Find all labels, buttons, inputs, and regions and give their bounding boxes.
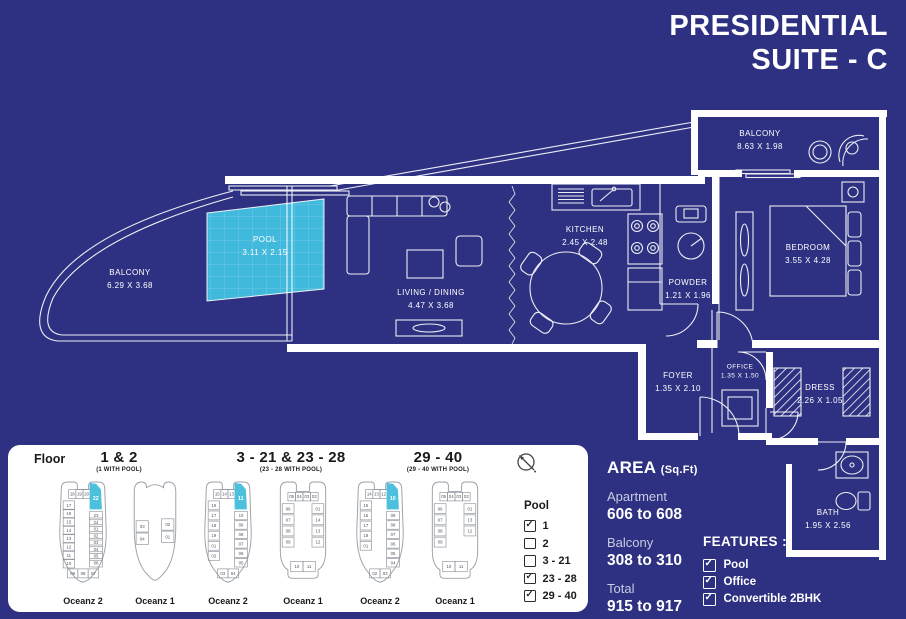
area-row-value: 606 to 608 xyxy=(607,506,698,524)
svg-text:11: 11 xyxy=(238,496,244,502)
svg-text:11: 11 xyxy=(459,564,464,569)
svg-text:09: 09 xyxy=(70,571,75,576)
svg-text:01: 01 xyxy=(94,527,99,532)
pool-legend-title: Pool xyxy=(524,500,577,512)
mini-plan-3: 15141312111009080706051617181901020304 xyxy=(194,476,262,590)
checkbox-icon xyxy=(524,590,536,602)
svg-text:16: 16 xyxy=(66,511,71,516)
floor-label: Floor xyxy=(34,452,65,466)
svg-text:18: 18 xyxy=(70,492,75,497)
svg-text:19: 19 xyxy=(77,492,82,497)
svg-text:06: 06 xyxy=(438,506,443,511)
svg-text:01: 01 xyxy=(315,506,320,511)
svg-text:08: 08 xyxy=(239,532,244,537)
svg-text:13: 13 xyxy=(374,492,379,497)
svg-text:01: 01 xyxy=(211,543,216,548)
floor-group-2: 3 - 21 & 23 - 28 (23 - 28 WITH POOL) xyxy=(236,449,345,473)
svg-text:06: 06 xyxy=(391,541,396,546)
svg-text:03: 03 xyxy=(140,524,145,529)
room-label-kitchen: KITCHEN 2.45 X 2.48 xyxy=(562,224,608,250)
svg-text:13: 13 xyxy=(315,529,320,534)
svg-text:22: 22 xyxy=(93,496,99,502)
svg-text:10: 10 xyxy=(294,564,299,569)
svg-text:01: 01 xyxy=(467,506,472,511)
svg-text:14: 14 xyxy=(367,492,372,497)
building-label-1: Oceanz 2 xyxy=(49,596,117,606)
area-heading: AREA (Sq.Ft) xyxy=(607,458,698,478)
svg-text:09: 09 xyxy=(286,540,291,545)
svg-text:07: 07 xyxy=(286,517,291,522)
room-label-office: OFFICE 1.35 X 1.50 xyxy=(721,363,759,382)
svg-text:10: 10 xyxy=(66,561,71,566)
area-panel: AREA (Sq.Ft) Apartment 606 to 608 Balcon… xyxy=(607,458,698,616)
svg-text:23: 23 xyxy=(94,513,99,518)
room-label-bath: BATH 1.95 X 2.56 xyxy=(805,507,851,533)
room-label-dress: DRESS 2.26 X 1.05 xyxy=(797,382,843,408)
svg-text:20: 20 xyxy=(84,492,89,497)
building-label-6: Oceanz 1 xyxy=(421,596,489,606)
svg-text:01: 01 xyxy=(165,534,170,539)
svg-text:03: 03 xyxy=(220,571,225,576)
svg-text:14: 14 xyxy=(66,528,71,533)
svg-text:10: 10 xyxy=(390,496,396,502)
legend-item-3: 3 - 21 xyxy=(524,555,577,567)
feature-item-office: Office xyxy=(703,576,821,589)
floor-group-3: 29 - 40 (29 - 40 WITH POOL) xyxy=(407,449,469,473)
floors-panel: Floor 1 & 2 (1 WITH POOL) 3 - 21 & 23 - … xyxy=(8,445,588,612)
svg-text:02: 02 xyxy=(94,533,99,538)
mini-plan-1: 1819202122232401020304050617161514131211… xyxy=(49,476,117,590)
svg-text:15: 15 xyxy=(66,520,71,525)
area-row-value: 915 to 917 xyxy=(607,598,698,616)
svg-text:05: 05 xyxy=(289,494,294,499)
svg-text:13: 13 xyxy=(229,492,234,497)
svg-text:12: 12 xyxy=(467,529,472,534)
svg-text:11: 11 xyxy=(67,553,72,558)
svg-text:02: 02 xyxy=(372,571,377,576)
svg-text:04: 04 xyxy=(297,494,302,499)
features-heading: FEATURES : xyxy=(703,534,821,549)
svg-text:16: 16 xyxy=(211,503,216,508)
svg-text:07: 07 xyxy=(91,571,96,576)
svg-text:05: 05 xyxy=(391,551,396,556)
svg-text:03: 03 xyxy=(383,571,388,576)
legend-item-1: 1 xyxy=(524,520,577,532)
svg-text:05: 05 xyxy=(239,560,244,565)
svg-text:06: 06 xyxy=(94,560,99,565)
legend-item-4: 23 - 28 xyxy=(524,573,577,585)
checkbox-icon xyxy=(524,555,536,567)
svg-text:13: 13 xyxy=(467,517,472,522)
svg-text:07: 07 xyxy=(391,532,396,537)
feature-item-convertible: Convertible 2BHK xyxy=(703,593,821,606)
area-row-label: Total xyxy=(607,581,698,596)
svg-text:18: 18 xyxy=(363,533,368,538)
svg-text:15: 15 xyxy=(363,503,368,508)
svg-text:04: 04 xyxy=(449,494,454,499)
building-label-3: Oceanz 2 xyxy=(194,596,262,606)
svg-text:09: 09 xyxy=(239,523,244,528)
svg-text:08: 08 xyxy=(286,529,291,534)
svg-text:04: 04 xyxy=(94,547,99,552)
svg-text:08: 08 xyxy=(81,571,86,576)
svg-text:04: 04 xyxy=(391,560,396,565)
svg-text:11: 11 xyxy=(307,564,312,569)
feature-item-pool: Pool xyxy=(703,559,821,572)
mini-plan-5: 141312111009080706050415161718010203 xyxy=(346,476,414,590)
room-label-foyer: FOYER 1.35 X 2.10 xyxy=(655,370,701,396)
svg-text:12: 12 xyxy=(315,540,320,545)
svg-text:05: 05 xyxy=(441,494,446,499)
svg-text:18: 18 xyxy=(211,523,216,528)
svg-text:09: 09 xyxy=(391,513,396,518)
svg-text:06: 06 xyxy=(239,551,244,556)
svg-text:02: 02 xyxy=(312,494,317,499)
svg-text:02: 02 xyxy=(211,553,216,558)
checkbox-icon xyxy=(524,538,536,550)
svg-text:13: 13 xyxy=(66,536,71,541)
svg-text:04: 04 xyxy=(140,536,145,541)
svg-text:17: 17 xyxy=(211,513,216,518)
svg-text:01: 01 xyxy=(363,543,368,548)
area-row-label: Balcony xyxy=(607,535,698,550)
floor-group-1: 1 & 2 (1 WITH POOL) xyxy=(96,449,142,473)
svg-text:09: 09 xyxy=(438,540,443,545)
svg-text:10: 10 xyxy=(446,564,451,569)
svg-text:07: 07 xyxy=(239,541,244,546)
room-label-living: LIVING / DINING 4.47 X 3.68 xyxy=(397,287,465,313)
svg-text:02: 02 xyxy=(464,494,469,499)
svg-text:10: 10 xyxy=(239,513,244,518)
room-label-powder: POWDER 1.21 X 1.96 xyxy=(665,277,711,303)
north-arrow-icon xyxy=(514,451,540,482)
svg-text:03: 03 xyxy=(456,494,461,499)
svg-text:05: 05 xyxy=(94,554,99,559)
svg-text:12: 12 xyxy=(66,544,71,549)
svg-text:14: 14 xyxy=(222,492,227,497)
building-label-4: Oceanz 1 xyxy=(269,596,337,606)
svg-text:24: 24 xyxy=(94,520,99,525)
area-unit: (Sq.Ft) xyxy=(661,464,698,476)
svg-text:03: 03 xyxy=(304,494,309,499)
svg-text:17: 17 xyxy=(363,523,368,528)
area-row-value: 308 to 310 xyxy=(607,552,698,570)
mini-plan-2: 03040201 xyxy=(121,476,189,590)
svg-text:04: 04 xyxy=(231,571,236,576)
checkbox-icon xyxy=(703,559,716,572)
checkbox-icon xyxy=(524,573,536,585)
checkbox-icon xyxy=(703,576,716,589)
checkbox-icon xyxy=(524,520,536,532)
svg-text:06: 06 xyxy=(286,506,291,511)
mini-plan-6: 05040302060708090113121011 xyxy=(421,476,489,590)
svg-text:12: 12 xyxy=(381,492,386,497)
room-label-bedroom: BEDROOM 3.55 X 4.28 xyxy=(785,242,831,268)
mini-plan-4: 0504030206070809011413121011 xyxy=(269,476,337,590)
svg-text:02: 02 xyxy=(165,522,170,527)
svg-text:14: 14 xyxy=(315,517,320,522)
svg-text:08: 08 xyxy=(438,529,443,534)
building-label-2: Oceanz 1 xyxy=(121,596,189,606)
checkbox-icon xyxy=(703,593,716,606)
building-label-5: Oceanz 2 xyxy=(346,596,414,606)
svg-text:07: 07 xyxy=(438,517,443,522)
pool-legend: Pool 1 2 3 - 21 23 - 28 29 - 40 xyxy=(524,500,577,608)
room-label-pool: POOL 3.11 X 2.15 xyxy=(242,234,287,260)
svg-text:16: 16 xyxy=(363,513,368,518)
svg-text:08: 08 xyxy=(391,523,396,528)
features-panel: FEATURES : Pool Office Convertible 2BHK xyxy=(703,534,821,610)
svg-text:15: 15 xyxy=(215,492,220,497)
area-row-label: Apartment xyxy=(607,489,698,504)
room-label-balcony-left: BALCONY 6.29 X 3.68 xyxy=(107,267,153,293)
room-label-balcony-top: BALCONY 8.63 X 1.98 xyxy=(737,128,783,154)
svg-text:03: 03 xyxy=(94,540,99,545)
svg-text:19: 19 xyxy=(211,533,216,538)
svg-text:17: 17 xyxy=(66,503,71,508)
legend-item-5: 29 - 40 xyxy=(524,590,577,602)
legend-item-2: 2 xyxy=(524,538,577,550)
